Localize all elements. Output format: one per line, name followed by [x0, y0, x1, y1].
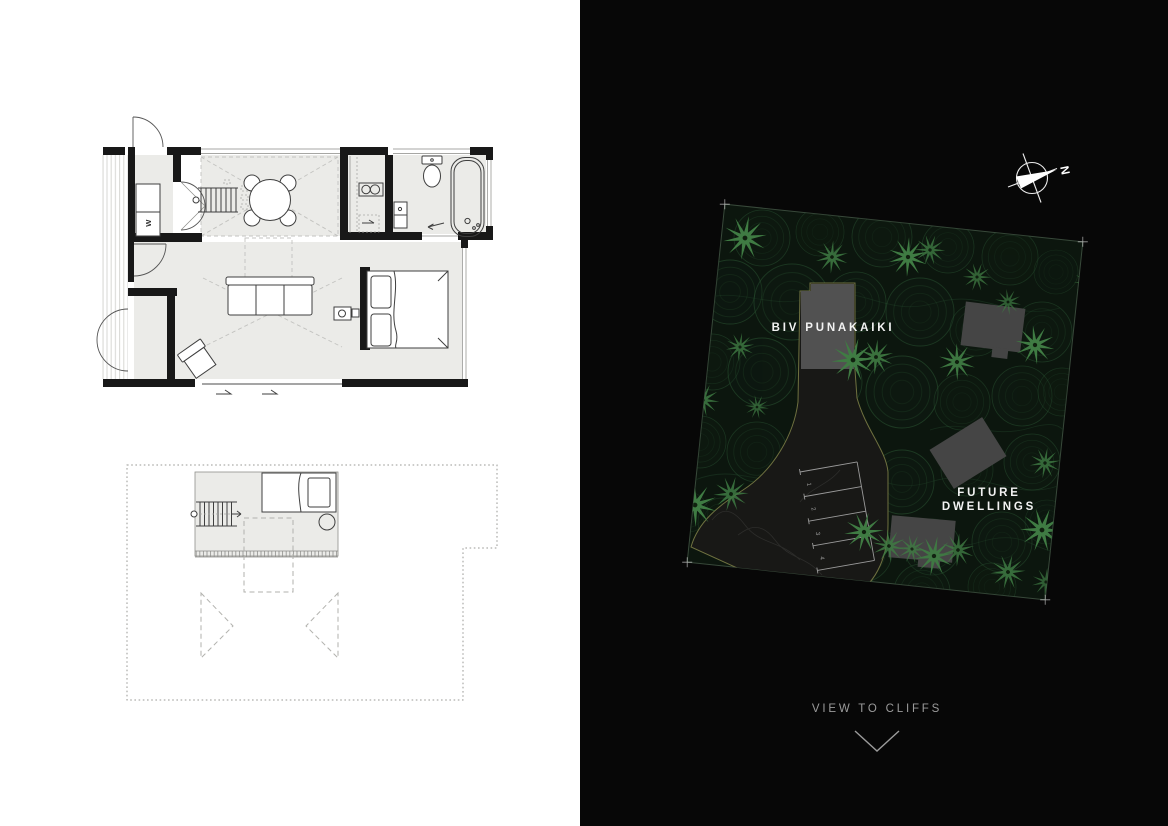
main-floor-plan: W: [97, 117, 493, 394]
loft-floor-plan: [127, 465, 497, 700]
sofa: [226, 277, 314, 315]
bed: [367, 271, 448, 348]
left-panel: W: [97, 117, 497, 700]
site-plan: 1 2 3 4: [667, 199, 1102, 623]
page: W: [0, 0, 1168, 826]
right-panel: 1 2 3 4: [580, 0, 1168, 826]
vanity-icon: [394, 202, 407, 228]
label-biv-punakaiki: BIV PUNAKAIKI: [772, 322, 895, 334]
loft-bed: [262, 473, 336, 512]
dining-table: [244, 175, 296, 226]
deck: [103, 155, 128, 379]
washer-label: W: [144, 219, 153, 227]
tree-canopy: [982, 229, 1038, 285]
label-future-line1: FUTURE: [957, 487, 1020, 499]
tree-canopy: [1034, 250, 1078, 294]
tree-canopy: [886, 278, 954, 346]
entry-door: [133, 117, 163, 147]
roof-fold-triangles: [201, 593, 338, 658]
tree-canopy: [866, 356, 938, 428]
loft-railing: [195, 551, 338, 557]
drawing-sheet: W: [0, 0, 1168, 826]
tree-canopy: [972, 512, 1032, 572]
label-view-to-cliffs: VIEW TO CLIFFS: [812, 703, 942, 715]
laundry: W: [136, 184, 160, 236]
slide-arrows-icon: [216, 390, 277, 394]
label-future-line2: DWELLINGS: [942, 501, 1036, 513]
toilet-icon: [422, 156, 442, 187]
